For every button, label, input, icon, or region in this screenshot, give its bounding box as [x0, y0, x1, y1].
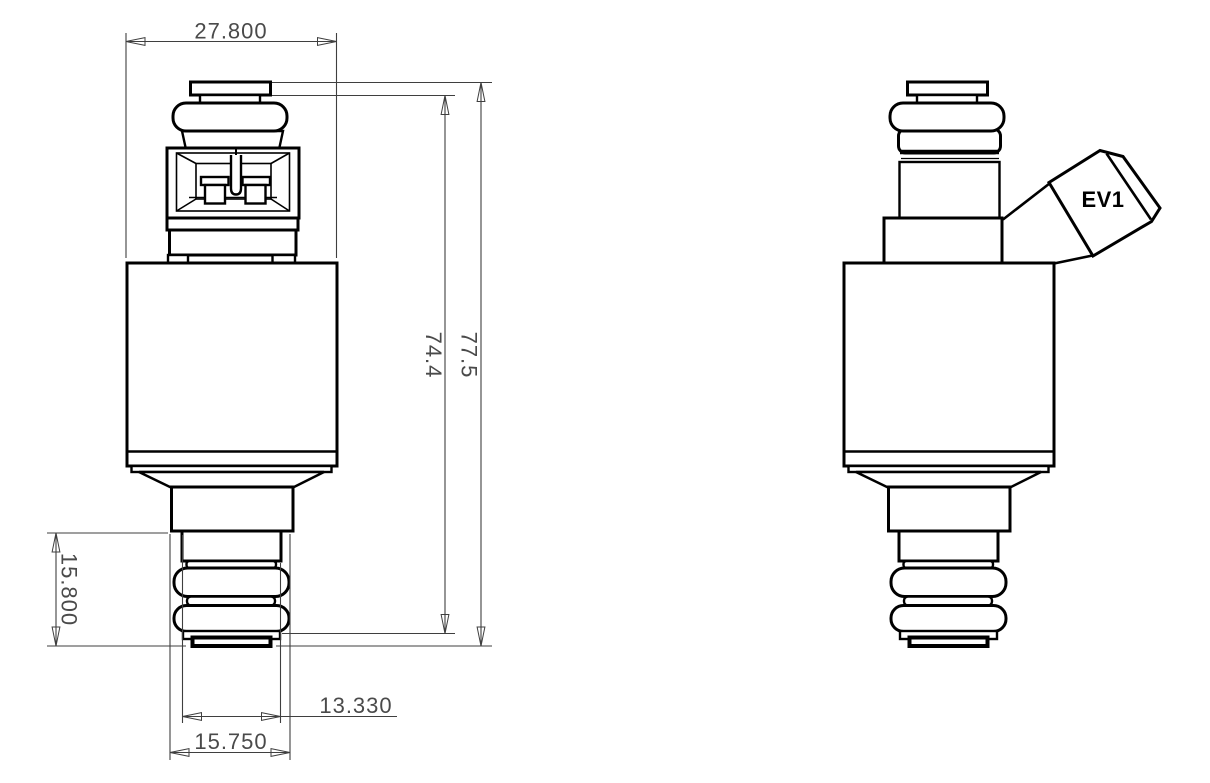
dim-tip-width-label: 13.330	[319, 693, 392, 718]
dim-seat-width-label: 15.750	[194, 729, 267, 754]
ev1-connector-label: EV1	[1081, 187, 1124, 212]
dim-overall-height-label: 77.5	[457, 332, 482, 379]
connector-arm-lower	[1054, 256, 1093, 264]
front-view	[127, 82, 337, 646]
ev1-connector-block: EV1	[1049, 151, 1160, 257]
side-collar	[884, 218, 1002, 263]
drawing-canvas: EV1	[0, 0, 1210, 783]
side-neck	[900, 162, 1000, 218]
terminal-right	[246, 185, 266, 204]
connector-rim	[167, 218, 298, 230]
side-neck-band	[899, 129, 1001, 153]
dim-cap-to-seat-height-label: 74.4	[421, 332, 446, 379]
connector-base	[170, 230, 297, 255]
dim-lower-tip-height-label: 15.800	[57, 553, 82, 626]
connector-arm-upper	[1003, 184, 1050, 220]
side-view: EV1	[844, 82, 1160, 646]
dim-body-width-label: 27.800	[194, 19, 267, 44]
electrical-connector-socket	[167, 148, 299, 218]
center-pin	[231, 155, 241, 195]
terminal-left	[205, 185, 225, 204]
